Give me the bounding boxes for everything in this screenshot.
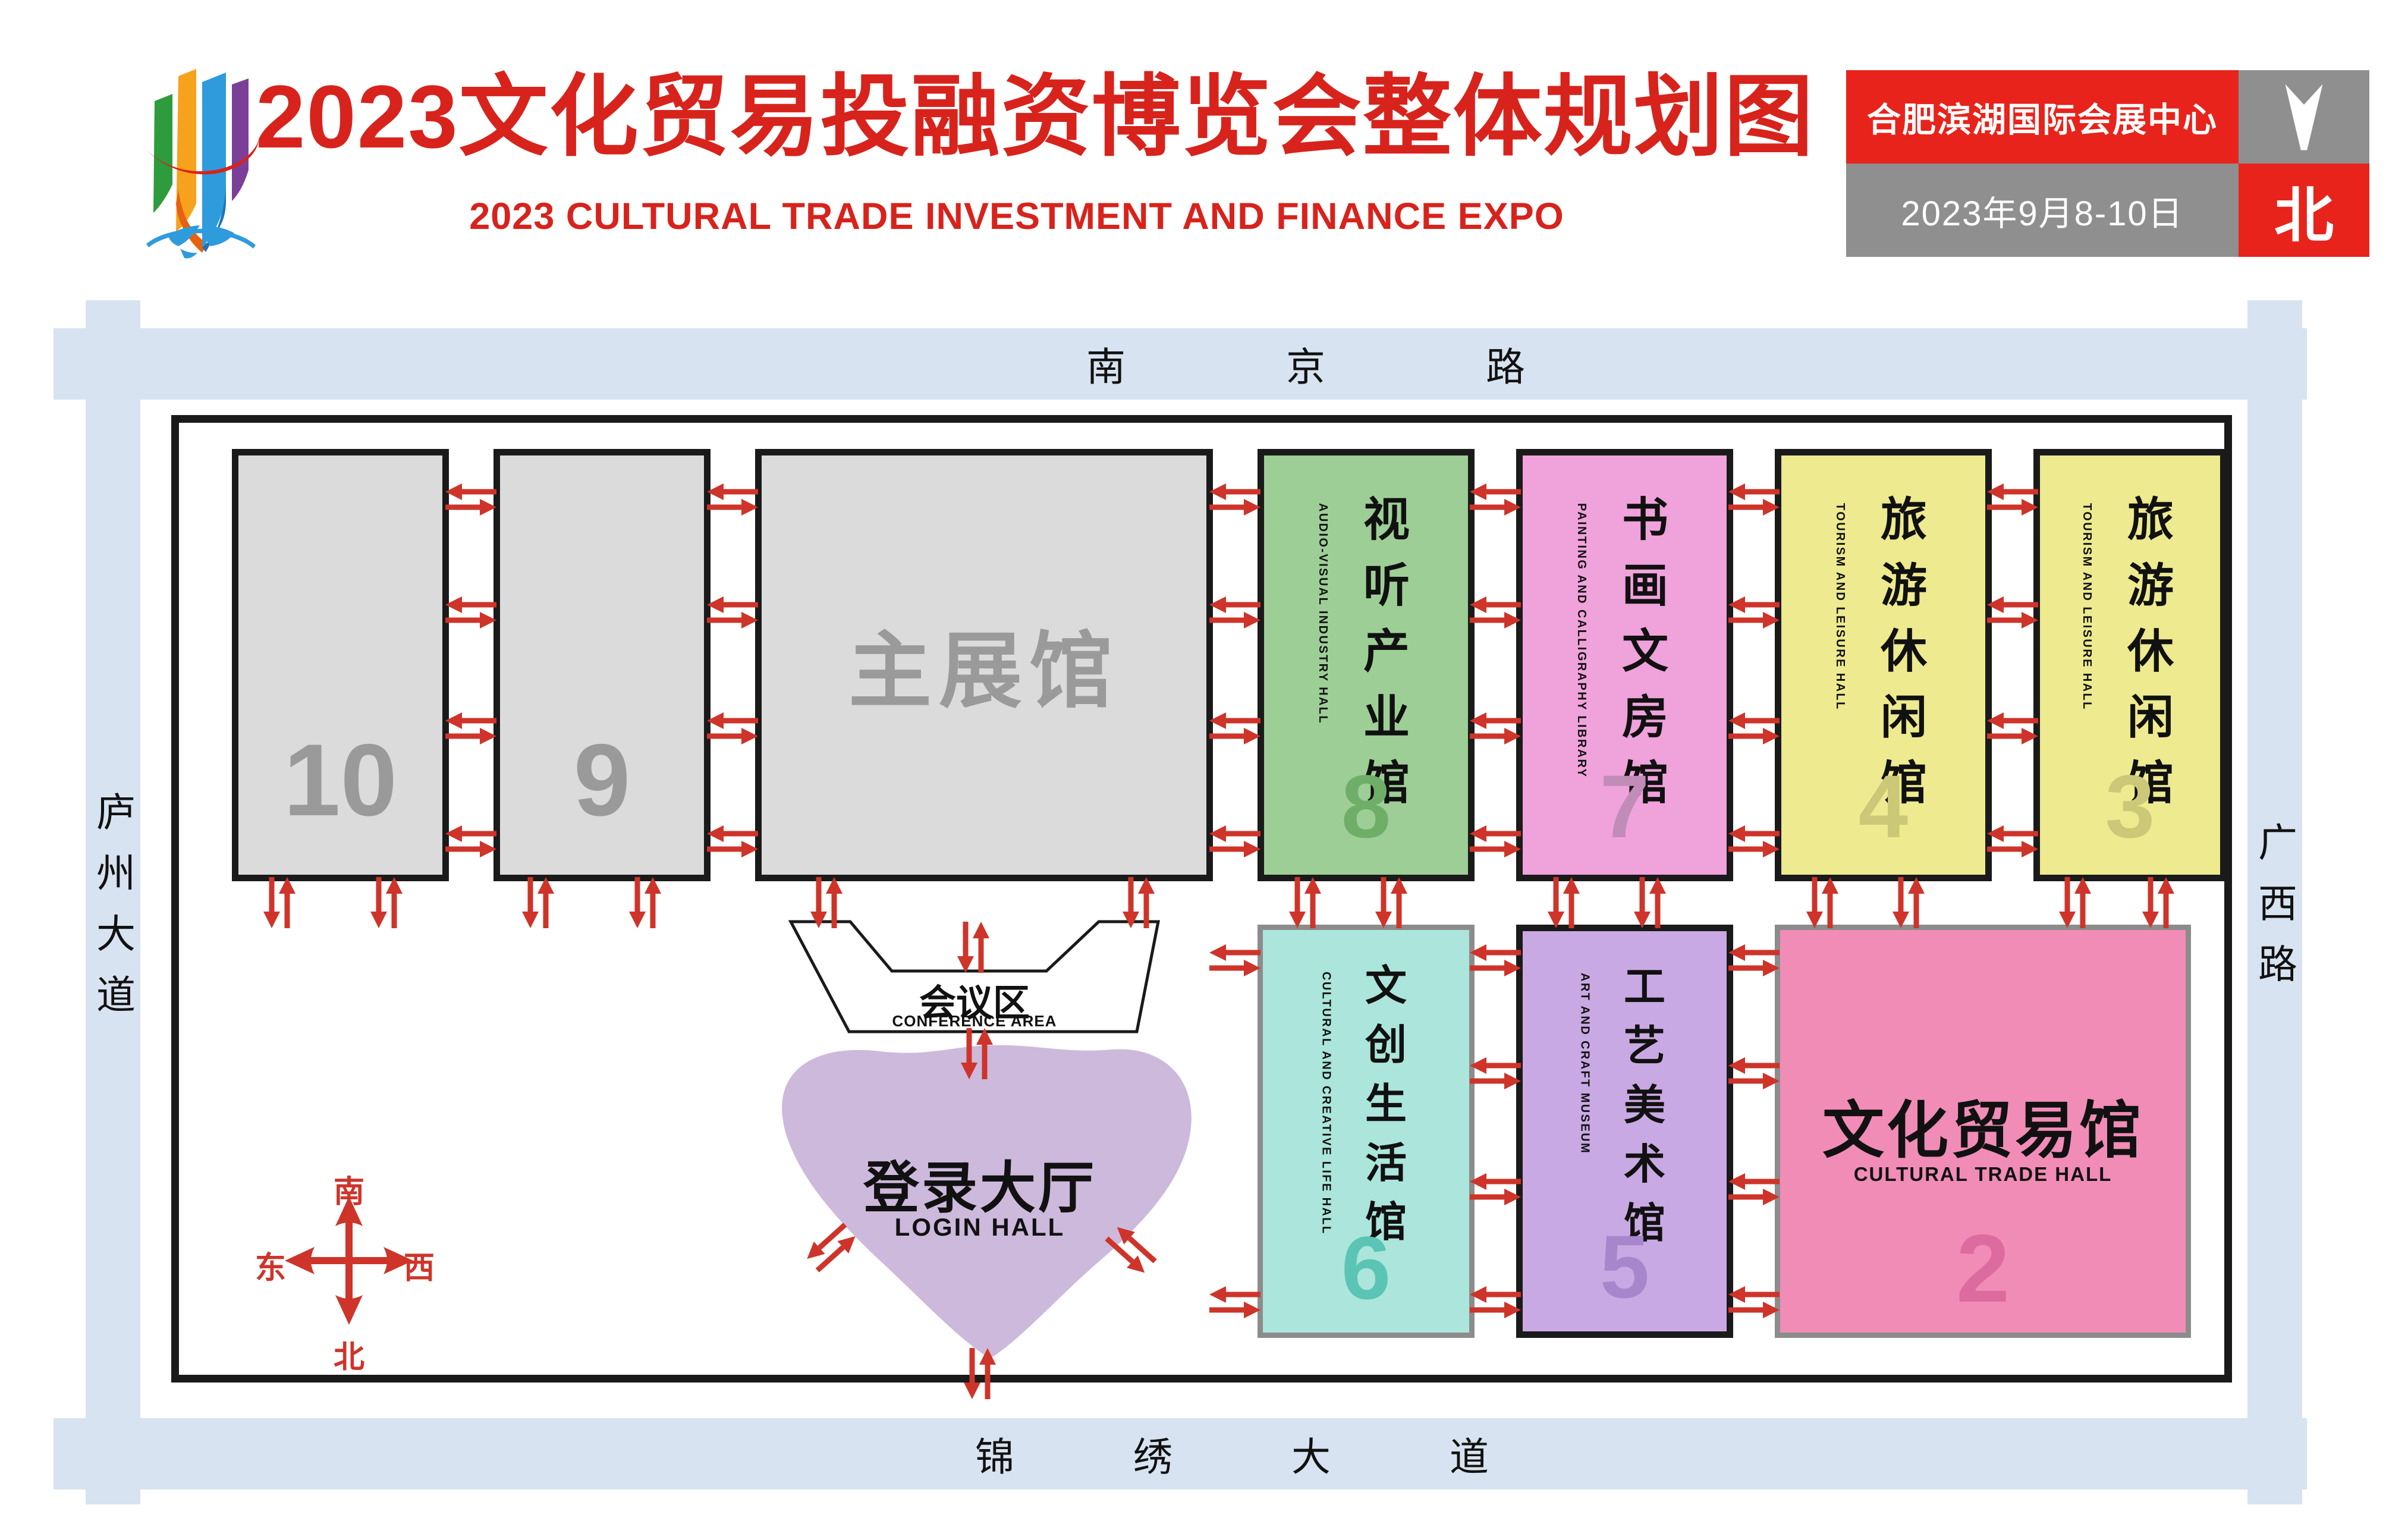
hall-4-tourism-leisure: TOURISM AND LEISURE HALL 旅游休闲馆 4 [1775,449,1992,881]
hall-9: 9 [493,449,711,881]
expo-logo-icon [136,48,263,274]
compass-north-label: 北 [322,1332,376,1377]
hall-7-name-en: PAINTING AND CALLIGRAPHY LIBRARY [1574,503,1588,778]
hall-7-painting-calligraphy: PAINTING AND CALLIGRAPHY LIBRARY 书画文房馆 7 [1516,449,1733,881]
hall-7-number: 7 [1523,755,1727,858]
hall-6-cultural-creative: CULTURAL AND CREATIVE LIFE HALL 文创生活馆 6 [1258,925,1475,1338]
hall-10: 10 [232,449,449,881]
hall-4-number: 4 [1781,755,1985,858]
compass-south-label: 南 [322,1167,376,1211]
compass-east-label: 东 [244,1243,297,1287]
north-arrow-cell [2239,70,2369,164]
hall-2-cultural-trade: 文化贸易馆 CULTURAL TRADE HALL 2 [1775,925,2191,1338]
hall-9-number: 9 [500,721,704,839]
compass-west-label: 西 [392,1243,446,1287]
hall-5-number: 5 [1523,1215,1727,1318]
hall-8-name-en: AUDIO-VISUAL INDUSTRY HALL [1316,503,1329,724]
hall-6-number: 6 [1263,1217,1469,1319]
road-luzhou-avenue: 庐州大道 [86,300,140,1504]
main-exhibition-hall: 主展馆 [755,449,1213,881]
hall-2-name-zh: 文化贸易馆 [1780,1080,2186,1170]
hall-5-name-en: ART AND CRAFT MUSEUM [1578,973,1592,1154]
hall-8-audio-visual: AUDIO-VISUAL INDUSTRY HALL 视听产业馆 8 [1258,449,1475,881]
venue-name: 合肥滨湖国际会展中心 [1846,70,2239,164]
road-guangxi-road: 广西路 [2247,300,2302,1504]
page-title: 2023文化贸易投融资博览会整体规划图 [256,70,1778,164]
venue-info-box: 合肥滨湖国际会展中心 2023年9月8-10日 北 [1846,70,2369,257]
hall-6-name-en: CULTURAL AND CREATIVE LIFE HALL [1319,972,1333,1235]
hall-5-art-craft: ART AND CRAFT MUSEUM 工艺美术馆 5 [1516,925,1733,1338]
conference-area-name-en: CONFERENCE AREA [856,1012,1093,1030]
road-nanjing-label: 南京路 [1086,335,1686,392]
hall-2-name-en: CULTURAL TRADE HALL [1780,1163,2186,1186]
hall-3-name-en: TOURISM AND LEISURE HALL [2080,503,2093,711]
road-jinxiu-label: 锦绣大道 [975,1425,1608,1482]
expo-plan-poster: 2023文化贸易投融资博览会整体规划图 2023 CULTURAL TRADE … [0,0,2408,1527]
page-subtitle: 2023 CULTURAL TRADE INVESTMENT AND FINAN… [256,195,1778,238]
login-hall-name: 登录大厅 [831,1143,1128,1224]
hall-2-number: 2 [1780,1214,2186,1324]
hall-10-number: 10 [238,721,442,839]
road-jinxiu-avenue: 锦绣大道 [54,1418,2307,1490]
hall-3-number: 3 [2040,755,2220,858]
road-luzhou-label: 庐州大道 [84,791,142,1035]
event-dates: 2023年9月8-10日 [1846,164,2239,257]
hall-8-number: 8 [1264,755,1468,858]
hall-4-name-en: TOURISM AND LEISURE HALL [1833,503,1847,711]
hall-3-tourism-leisure: TOURISM AND LEISURE HALL 旅游休闲馆 3 [2033,449,2227,881]
road-guangxi-label: 广西路 [2246,822,2303,1004]
road-nanjing-road: 南京路 [54,328,2307,400]
main-hall-name: 主展馆 [762,604,1206,724]
hall-6-name-zh: 文创生活馆 [1353,963,1413,1259]
north-label: 北 [2239,164,2369,257]
down-arrowhead-icon [2278,81,2330,153]
login-hall-name-en: LOGIN HALL [831,1213,1128,1242]
